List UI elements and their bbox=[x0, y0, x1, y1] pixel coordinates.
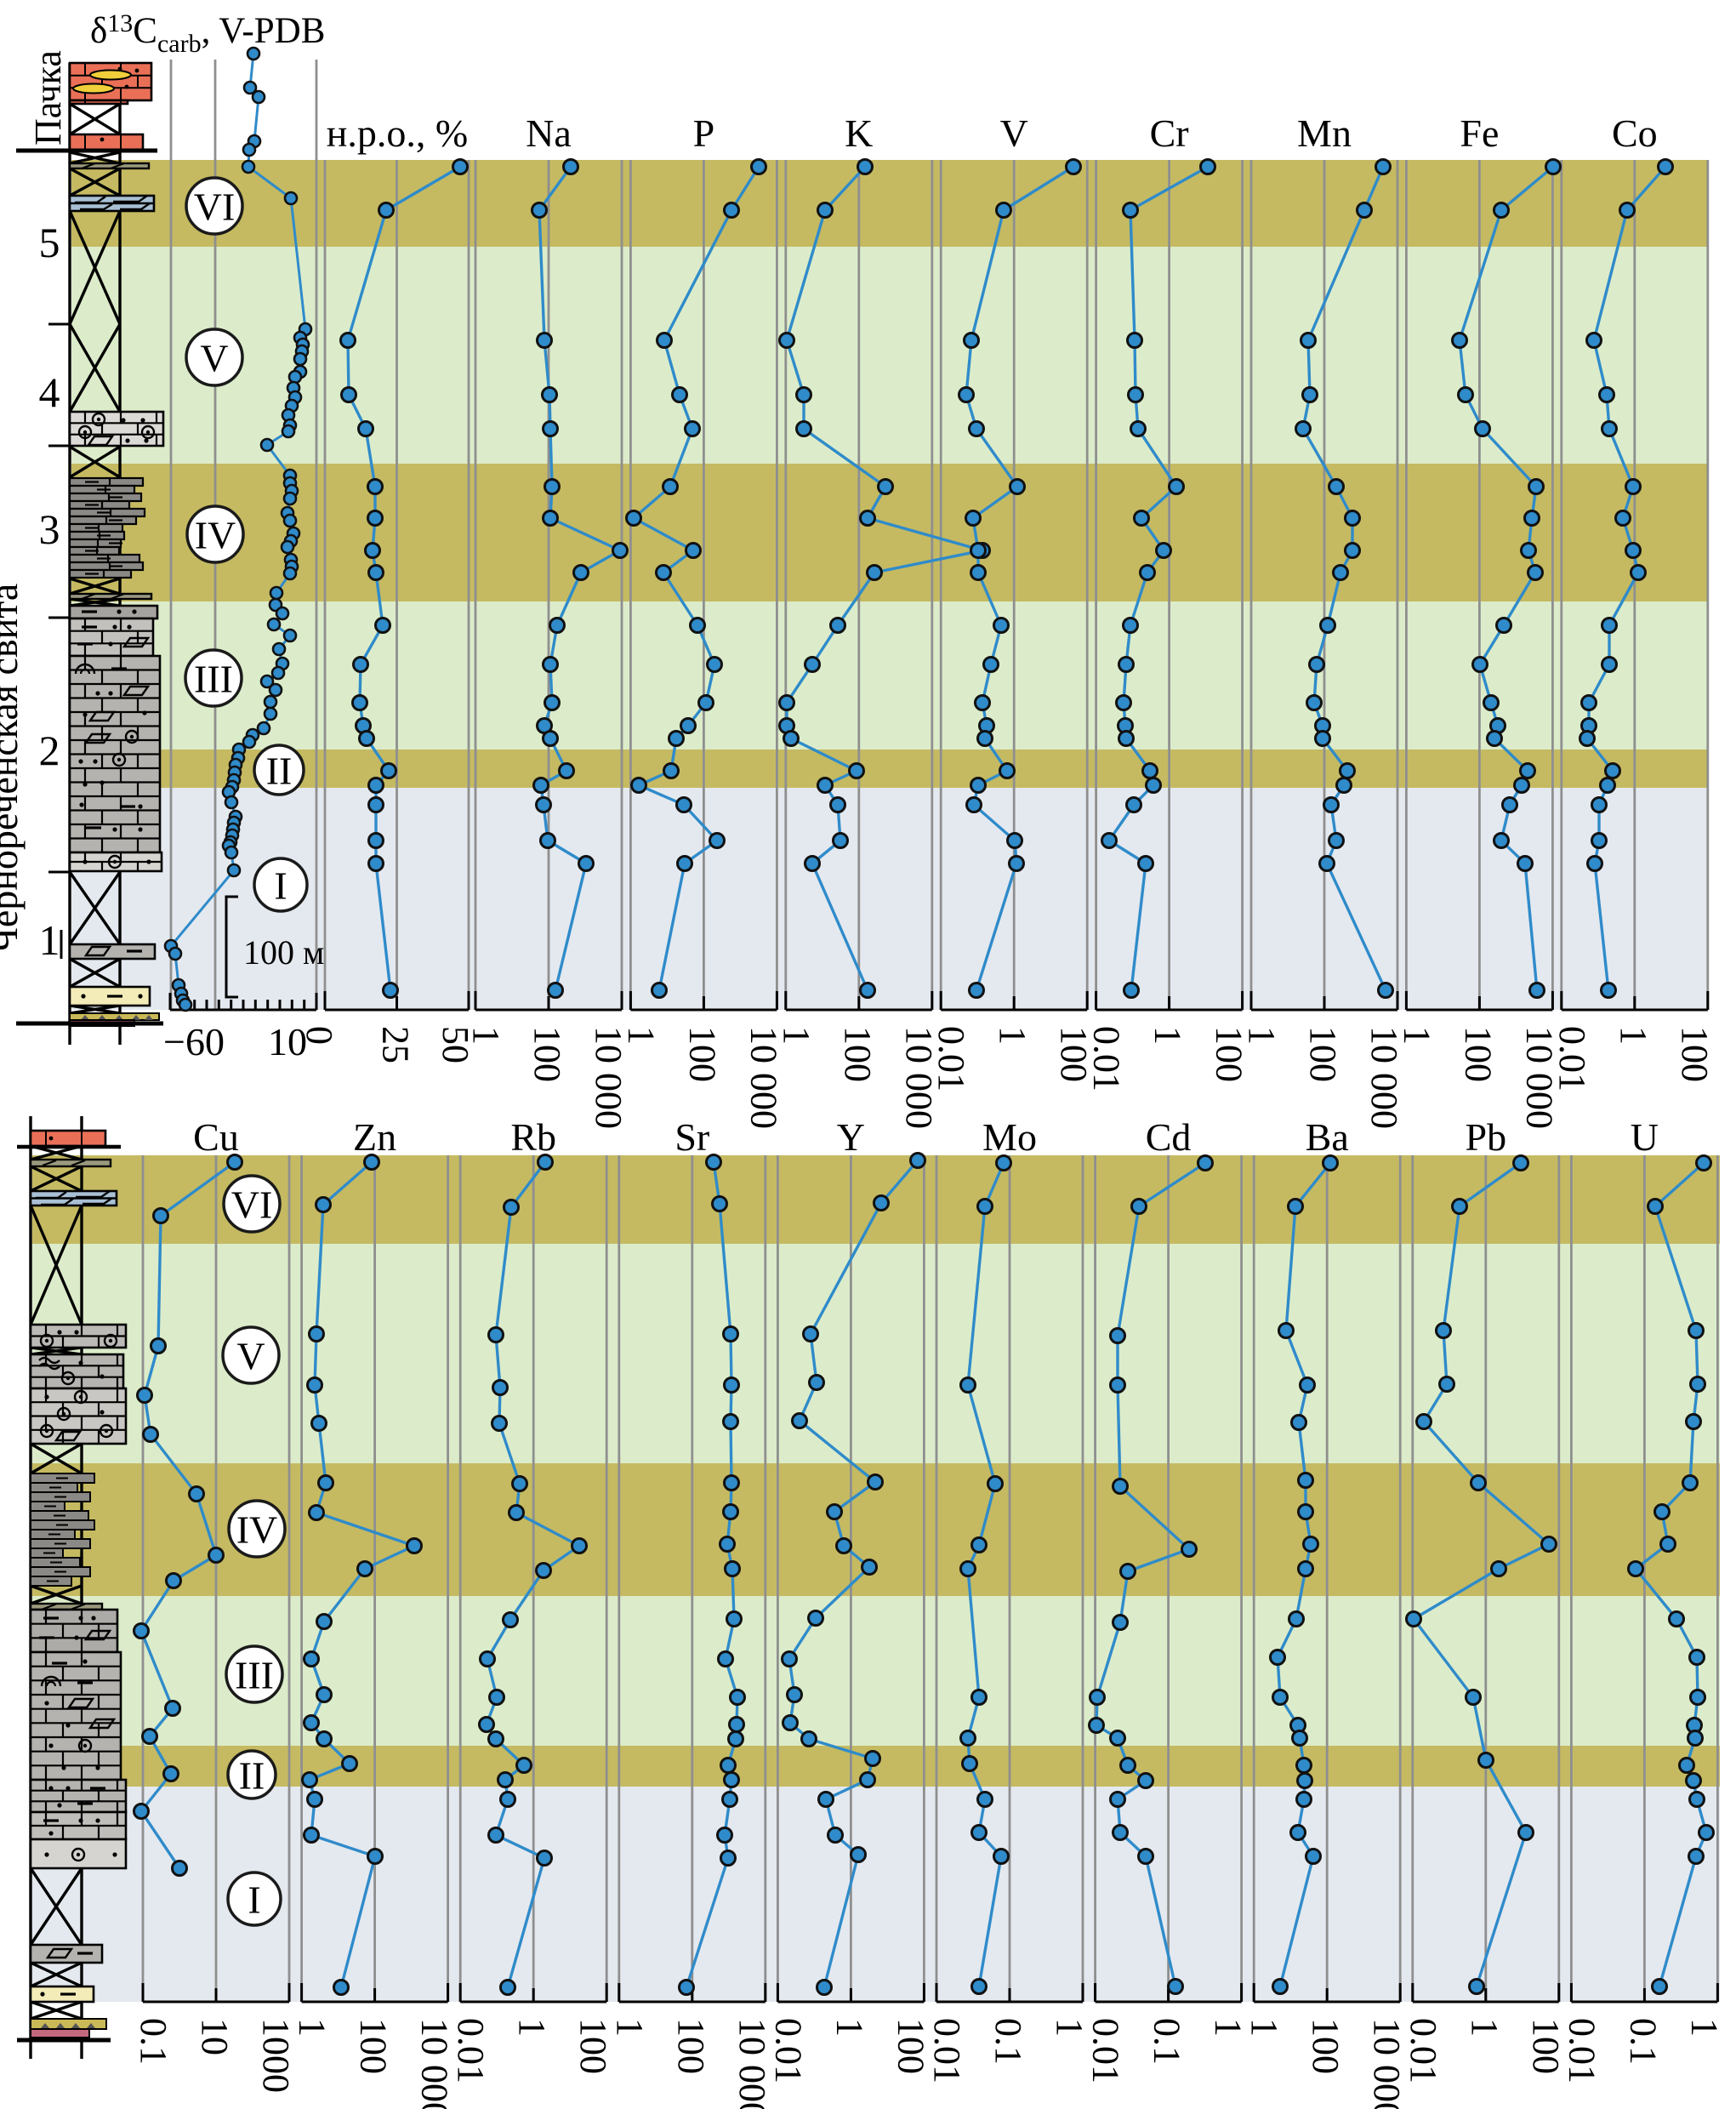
svg-text:Ba: Ba bbox=[1306, 1115, 1349, 1159]
svg-text:I: I bbox=[274, 864, 287, 908]
svg-text:1: 1 bbox=[1208, 2018, 1249, 2037]
svg-text:U: U bbox=[1631, 1115, 1659, 1159]
svg-text:100: 100 bbox=[1674, 1026, 1716, 1082]
svg-text:Co: Co bbox=[1612, 111, 1658, 155]
svg-text:IV: IV bbox=[236, 1508, 278, 1552]
svg-text:1: 1 bbox=[1613, 1026, 1654, 1045]
svg-text:0.1: 0.1 bbox=[988, 2018, 1029, 2065]
svg-text:100: 100 bbox=[837, 1026, 879, 1082]
svg-text:100: 100 bbox=[890, 2018, 931, 2074]
svg-text:4: 4 bbox=[39, 368, 60, 416]
svg-text:1: 1 bbox=[828, 2018, 870, 2037]
svg-text:Cu: Cu bbox=[193, 1115, 239, 1159]
svg-text:100: 100 bbox=[353, 2018, 395, 2074]
svg-text:н.р.о., %: н.р.о., % bbox=[327, 111, 468, 155]
svg-text:II: II bbox=[266, 750, 293, 793]
svg-text:0.01: 0.01 bbox=[1551, 1026, 1593, 1092]
svg-text:100: 100 bbox=[1302, 1026, 1344, 1082]
svg-text:1: 1 bbox=[620, 1026, 662, 1045]
svg-text:0.1: 0.1 bbox=[1147, 2018, 1188, 2065]
svg-text:Sr: Sr bbox=[674, 1115, 709, 1159]
svg-text:1: 1 bbox=[1244, 2018, 1285, 2037]
svg-text:100: 100 bbox=[1305, 2018, 1346, 2074]
svg-text:25: 25 bbox=[375, 1026, 417, 1063]
svg-text:1: 1 bbox=[1464, 2018, 1505, 2037]
svg-text:1: 1 bbox=[1147, 1026, 1189, 1045]
svg-text:III: III bbox=[235, 1654, 274, 1697]
svg-text:10 000: 10 000 bbox=[414, 2018, 456, 2109]
svg-text:I: I bbox=[248, 1878, 260, 1922]
svg-text:Zn: Zn bbox=[353, 1115, 396, 1159]
svg-text:1: 1 bbox=[39, 916, 60, 964]
svg-text:0.01: 0.01 bbox=[1561, 2018, 1602, 2083]
svg-text:1: 1 bbox=[465, 1026, 507, 1045]
svg-text:0.1: 0.1 bbox=[133, 2018, 174, 2065]
svg-text:Pb: Pb bbox=[1466, 1115, 1507, 1159]
svg-text:Mn: Mn bbox=[1297, 111, 1352, 155]
svg-text:1000: 1000 bbox=[255, 2018, 297, 2093]
svg-text:1: 1 bbox=[511, 2018, 553, 2037]
svg-text:2: 2 bbox=[39, 727, 60, 774]
svg-text:0.01: 0.01 bbox=[767, 2018, 809, 2083]
svg-text:Cd: Cd bbox=[1146, 1115, 1192, 1159]
svg-text:IV: IV bbox=[195, 514, 236, 557]
svg-text:0.01: 0.01 bbox=[926, 2018, 968, 2083]
svg-text:0.01: 0.01 bbox=[931, 1026, 972, 1092]
svg-text:100: 100 bbox=[1525, 2018, 1567, 2074]
svg-text:5: 5 bbox=[39, 219, 60, 266]
svg-text:III: III bbox=[194, 658, 233, 701]
svg-text:VI: VI bbox=[231, 1183, 273, 1227]
svg-text:0.01: 0.01 bbox=[1403, 2018, 1444, 2083]
svg-text:10 000: 10 000 bbox=[1366, 2018, 1408, 2109]
svg-text:V: V bbox=[236, 1335, 265, 1378]
svg-text:Mo: Mo bbox=[982, 1115, 1037, 1159]
svg-text:V: V bbox=[1000, 111, 1028, 155]
svg-text:0.01: 0.01 bbox=[1086, 1026, 1128, 1092]
svg-text:10: 10 bbox=[194, 2018, 236, 2055]
svg-text:1: 1 bbox=[1683, 2018, 1725, 2037]
svg-text:V: V bbox=[200, 337, 228, 380]
svg-text:1: 1 bbox=[1396, 1026, 1437, 1045]
svg-text:II: II bbox=[239, 1754, 265, 1798]
svg-text:VI: VI bbox=[194, 185, 236, 229]
svg-text:100: 100 bbox=[1457, 1026, 1499, 1082]
svg-text:Y: Y bbox=[837, 1115, 865, 1159]
svg-text:Na: Na bbox=[526, 111, 572, 155]
svg-text:100 м: 100 м bbox=[243, 933, 324, 972]
svg-text:0.01: 0.01 bbox=[1085, 2018, 1127, 2083]
svg-text:P: P bbox=[693, 111, 715, 155]
svg-text:100: 100 bbox=[572, 2018, 614, 2074]
svg-text:100: 100 bbox=[526, 1026, 568, 1082]
svg-text:1: 1 bbox=[1241, 1026, 1283, 1045]
svg-text:Пачка: Пачка bbox=[27, 50, 69, 145]
svg-text:−60: −60 bbox=[163, 1020, 225, 1063]
svg-text:Cr: Cr bbox=[1150, 111, 1189, 155]
svg-text:Fe: Fe bbox=[1460, 111, 1499, 155]
svg-text:0.01: 0.01 bbox=[450, 2018, 492, 2083]
svg-text:1: 1 bbox=[992, 1026, 1033, 1045]
svg-text:1: 1 bbox=[776, 1026, 817, 1045]
svg-text:Чернореченская свита: Чернореченская свита bbox=[0, 584, 26, 953]
svg-text:K: K bbox=[845, 111, 873, 155]
svg-text:0: 0 bbox=[299, 1026, 340, 1045]
svg-text:100: 100 bbox=[670, 2018, 712, 2074]
svg-text:1: 1 bbox=[1049, 2018, 1090, 2037]
svg-text:3: 3 bbox=[39, 505, 60, 553]
svg-text:100: 100 bbox=[681, 1026, 723, 1082]
svg-text:Rb: Rb bbox=[510, 1115, 556, 1159]
svg-text:1: 1 bbox=[609, 2018, 651, 2037]
svg-text:1: 1 bbox=[292, 2018, 333, 2037]
svg-text:10 000: 10 000 bbox=[731, 2018, 773, 2109]
svg-text:0.1: 0.1 bbox=[1622, 2018, 1664, 2065]
